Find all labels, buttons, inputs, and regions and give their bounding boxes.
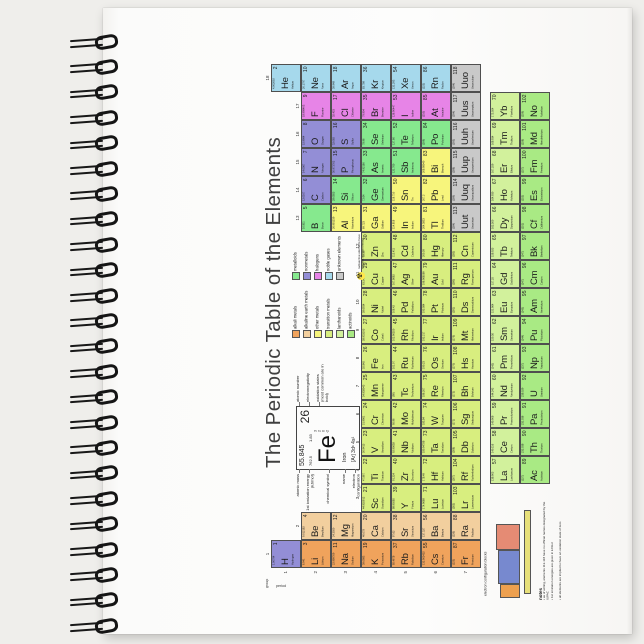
period-number-label: 4 — [373, 571, 378, 580]
element-cell-al: 1326.981539AlAluminium — [331, 204, 361, 232]
coil — [70, 212, 130, 232]
element-symbol: Ar — [340, 80, 351, 89]
note-item: • as of writing, elements 113-118 have n… — [543, 490, 551, 600]
element-symbol: N — [310, 166, 321, 173]
element-cell-cs: 55132.905452CsCaesium — [421, 540, 451, 568]
element-cell-sm: 62150.36SmSamarium — [490, 316, 520, 344]
element-symbol: Uus — [460, 101, 471, 117]
annotation-leader-line — [309, 469, 310, 473]
element-cell-fe: 2655.845FeIron — [361, 344, 391, 372]
coil-ring — [94, 58, 119, 76]
element-cell-hs: 108(270)HsHassium — [451, 344, 481, 372]
element-symbol: Uup — [460, 156, 471, 173]
coil — [70, 415, 130, 435]
element-symbol: Nb — [400, 441, 411, 453]
element-symbol: Uut — [460, 215, 471, 229]
coil-ring — [94, 185, 119, 203]
element-symbol: Cl — [340, 108, 351, 117]
element-symbol: Sb — [400, 162, 411, 173]
element-symbol: V — [370, 447, 381, 453]
atomic-mass: (294) — [453, 54, 459, 90]
coil-ring — [94, 236, 119, 254]
element-symbol: Db — [460, 441, 471, 453]
element-cell-tc: 43(98)TcTechnetium — [391, 372, 421, 400]
element-cell-mo: 4295.96MoMolybdenum — [391, 400, 421, 428]
element-cell-uuo: 118(294)UuoUnunoctium — [451, 64, 481, 92]
element-cell-kr: 3683.798KrKrypton — [361, 64, 391, 92]
coil — [70, 440, 130, 460]
coil-ring — [94, 566, 119, 584]
blocks-caption: electron configuration blocks — [484, 396, 492, 596]
element-cell-ac: 89(227)AcActinium — [520, 456, 550, 484]
element-cell-co: 2758.933195CoCobalt — [361, 316, 391, 344]
element-symbol: Rf — [460, 472, 471, 481]
coil-ring — [94, 617, 119, 635]
coil-ring — [94, 414, 119, 432]
element-name: Radon — [442, 41, 448, 89]
coil — [70, 34, 130, 54]
group-axis-word: group — [265, 579, 269, 588]
element-symbol: Ni — [370, 304, 381, 313]
element-cell-pa: 91231.036PaProtactinium — [520, 400, 550, 428]
element-cell-ag: 47107.8682AgSilver — [391, 260, 421, 288]
element-symbol: Sn — [400, 190, 411, 201]
element-cell-gd: 64157.25GdGadolinium — [490, 260, 520, 288]
element-cell-sb: 51121.760SbAntimony — [391, 148, 421, 176]
element-cell-mt: 109(276)MtMeitnerium — [451, 316, 481, 344]
element-symbol: Mt — [460, 331, 471, 341]
poster-title: The Periodic Table of the Elements — [262, 108, 286, 468]
annotation-leader-line — [345, 469, 346, 473]
coil-ring — [94, 287, 119, 305]
element-symbol: He — [280, 77, 291, 89]
element-cell-ho: 67164.930HoHolmium — [490, 176, 520, 204]
element-name: Ytterbium — [511, 69, 517, 117]
element-symbol: Th — [529, 442, 540, 453]
element-symbol: Bk — [529, 246, 540, 257]
feature-oxidation-states: 320-2 — [314, 410, 330, 430]
element-cell-pr: 59140.908PrPraseodymium — [490, 400, 520, 428]
element-symbol: Te — [400, 135, 411, 145]
element-cell-fr: 87(223)FrFrancium — [451, 540, 481, 568]
group-number-label: 2 — [295, 512, 300, 540]
element-cell-re: 75186.207ReRhenium — [421, 372, 451, 400]
element-symbol: Fe — [370, 358, 381, 369]
block-p-block — [496, 524, 520, 550]
element-symbol: Mg — [340, 524, 351, 537]
element-cell-no: 102(259)NoNobelium — [520, 92, 550, 120]
element-cell-br: 3579.904BrBromine — [361, 92, 391, 120]
element-symbol: Pd — [400, 302, 411, 313]
coil — [70, 339, 130, 359]
element-symbol: H — [280, 558, 291, 565]
legend-label: nonmetals — [304, 179, 313, 271]
element-cell-w: 74183.84WTungsten — [421, 400, 451, 428]
element-cell-si: 1428.0855SiSilicon — [331, 176, 361, 204]
element-symbol: Hf — [430, 472, 441, 481]
element-symbol: Cd — [400, 245, 411, 257]
legend-swatch — [303, 272, 311, 280]
element-cell-f: 918.998403FFluorine — [301, 92, 331, 120]
element-symbol: Uuh — [460, 128, 471, 145]
coil — [70, 85, 130, 105]
element-cell-hg: 80200.59HgMercury — [421, 232, 451, 260]
element-symbol: Se — [370, 134, 381, 145]
element-symbol: Br — [370, 108, 381, 117]
atomic-mass: (222) — [423, 54, 429, 90]
coil-ring — [94, 134, 119, 152]
annotation-leader-line — [299, 402, 300, 406]
element-symbol: Tb — [499, 246, 510, 257]
coil — [70, 390, 130, 410]
element-symbol: Lu — [430, 499, 441, 509]
element-symbol: Tc — [400, 388, 411, 397]
legend-swatch — [292, 272, 300, 280]
element-symbol: Rb — [400, 553, 411, 565]
coil-ring — [94, 439, 119, 457]
element-cell-ne: 1020.1797NeNeon — [301, 64, 331, 92]
coil-ring — [94, 337, 119, 355]
group-number-label: 18 — [265, 64, 270, 92]
element-symbol: Co — [370, 329, 381, 341]
legend-swatch — [347, 330, 355, 338]
element-cell-tl: 81204.3833TlThallium — [421, 204, 451, 232]
element-symbol: Ac — [529, 470, 540, 481]
element-symbol: Li — [310, 558, 321, 565]
element-cell-he: 24.002602HeHelium — [271, 64, 301, 92]
element-symbol: Nd — [499, 385, 510, 397]
element-symbol: Fm — [529, 160, 540, 173]
element-symbol: Cr — [370, 415, 381, 425]
element-symbol: Au — [430, 274, 441, 285]
element-symbol: La — [499, 471, 510, 481]
element-symbol: As — [370, 162, 381, 173]
element-cell-lr: 103(262)LrLawrencium — [451, 484, 481, 512]
element-symbol: Ti — [370, 474, 381, 481]
coil — [70, 517, 130, 537]
element-cell-n: 714.0067NNitrogen — [301, 148, 331, 176]
element-symbol: Pm — [499, 355, 510, 369]
element-cell-y: 3988.90585YYttrium — [391, 484, 421, 512]
coil — [70, 136, 130, 156]
element-cell-yb: 70173.054YbYtterbium — [490, 92, 520, 120]
element-symbol: Zr — [400, 472, 411, 481]
atomic-mass: 39.948 — [333, 54, 339, 90]
element-cell-rf: 104(267)RfRutherfordium — [451, 456, 481, 484]
element-cell-se: 3478.96SeSelenium — [361, 120, 391, 148]
feature-annotation-label: 1st ionization energy (kJ/mol) — [306, 436, 324, 512]
element-symbol: Y — [400, 503, 411, 509]
element-symbol: Fr — [460, 556, 471, 565]
atomic-mass: 4.002602 — [273, 54, 279, 90]
legend-swatch — [336, 272, 344, 280]
feature-annotation-label: name — [342, 436, 351, 512]
element-cell-er: 68167.259ErErbium — [490, 148, 520, 176]
coil-ring — [94, 83, 119, 101]
note-item: • all elements are implied to have an ox… — [559, 490, 567, 600]
legend-label: metalloids — [293, 179, 302, 271]
element-symbol: Re — [430, 385, 441, 397]
element-symbol: Sg — [460, 414, 471, 425]
annotation-leader-line — [309, 402, 310, 406]
element-name: Ununoctium — [472, 41, 478, 89]
element-symbol: Eu — [499, 302, 510, 313]
element-symbol: Uuq — [460, 184, 471, 201]
element-cell-mg: 1224.3050MgMagnesium — [331, 512, 361, 540]
period-number-label: 1 — [283, 571, 288, 580]
coil-ring — [94, 591, 119, 609]
element-symbol: Mo — [400, 412, 411, 425]
element-cell-la: 57138.905LaLanthanum — [490, 456, 520, 484]
element-symbol: Ag — [400, 274, 411, 285]
element-symbol: Hg — [430, 245, 441, 257]
group-number-label: 17 — [295, 92, 300, 120]
group-number-label: 15 — [295, 148, 300, 176]
element-cell-ce: 58140.116CeCerium — [490, 428, 520, 456]
coil — [70, 364, 130, 384]
feature-annotation-label: chemical symbol — [326, 436, 335, 512]
block-d-block — [498, 550, 520, 584]
element-cell-rg: 111(280)RgRoentgenium — [451, 260, 481, 288]
element-symbol: Ba — [430, 526, 441, 537]
element-name: Xenon — [412, 41, 418, 89]
element-cell-nd: 60144.242NdNeodymium — [490, 372, 520, 400]
element-symbol: Ho — [499, 189, 510, 201]
element-symbol: Ir — [430, 336, 441, 341]
element-symbol: At — [430, 108, 441, 117]
element-cell-sr: 3887.62SrStrontium — [391, 512, 421, 540]
legend-label: actinoids — [348, 237, 357, 329]
element-cell-rb: 3785.4678RbRubidium — [391, 540, 421, 568]
element-cell-ra: 88(226)RaRadium — [451, 512, 481, 540]
legend-swatch — [325, 330, 333, 338]
atomic-mass: 131.293 — [393, 54, 399, 90]
element-symbol: Am — [529, 299, 540, 313]
element-cell-te: 52127.60TeTellurium — [391, 120, 421, 148]
element-cell-cr: 2451.9961CrChromium — [361, 400, 391, 428]
element-cell-be: 49.012182BeBeryllium — [301, 512, 331, 540]
coil — [70, 263, 130, 283]
element-cell-s: 1632.065SSulfur — [331, 120, 361, 148]
element-cell-db: 105(268)DbDubnium — [451, 428, 481, 456]
element-cell-uup: 115(288)UupUnunpentium — [451, 148, 481, 176]
element-cell-hf: 72178.49HfHafnium — [421, 456, 451, 484]
element-symbol: Md — [529, 132, 540, 145]
element-symbol: Po — [430, 134, 441, 145]
element-symbol: Cn — [460, 245, 471, 257]
element-symbol: In — [400, 221, 411, 229]
element-symbol: Dy — [499, 218, 510, 229]
element-name: Neon — [322, 41, 328, 89]
element-cell-cf: 98(251)CfCalifornium — [520, 204, 550, 232]
element-cell-u: 92238.029UUranium — [520, 372, 550, 400]
atomic-mass: 20.1797 — [303, 54, 309, 90]
atomic-mass: (259) — [522, 82, 528, 118]
element-symbol: Sm — [499, 327, 510, 341]
element-cell-uus: 117(294)UusUnunseptium — [451, 92, 481, 120]
element-cell-md: 101(258)MdMendelevium — [520, 120, 550, 148]
element-symbol: Ra — [460, 525, 471, 537]
element-cell-pd: 46106.42PdPalladium — [391, 288, 421, 316]
element-cell-tm: 69168.934TmThulium — [490, 120, 520, 148]
element-symbol: O — [310, 138, 321, 145]
element-cell-sg: 106(271)SgSeaborgium — [451, 400, 481, 428]
coil — [70, 237, 130, 257]
coil — [70, 491, 130, 511]
legend-swatch — [314, 272, 322, 280]
element-name: Helium — [292, 41, 298, 89]
period-number-label: 5 — [403, 571, 408, 580]
element-cell-fm: 100(257)FmFermium — [520, 148, 550, 176]
block-f-block — [524, 510, 531, 594]
element-cell-th: 90232.038ThThorium — [520, 428, 550, 456]
element-cell-at: 85(210)AtAstatine — [421, 92, 451, 120]
element-cell-as: 3374.92160AsArsenic — [361, 148, 391, 176]
element-cell-na: 1122.989769NaSodium — [331, 540, 361, 568]
coil-ring — [94, 388, 119, 406]
element-cell-li: 36.941LiLithium — [301, 540, 331, 568]
element-symbol: F — [310, 111, 321, 117]
periodic-table-poster: The Periodic Table of the Elements 11.00… — [216, 38, 644, 608]
element-cell-i: 53126.90447IIodine — [391, 92, 421, 120]
element-symbol: K — [370, 559, 381, 565]
element-cell-cn: 112(285)CnCopernicium — [451, 232, 481, 260]
coil — [70, 542, 130, 562]
annotation-leader-line — [329, 469, 330, 473]
element-symbol: Np — [529, 357, 540, 369]
element-cell-bi: 83208.98040BiBismuth — [421, 148, 451, 176]
element-cell-h: 11.00794HHydrogen — [271, 540, 301, 568]
element-cell-nb: 4192.90638NbNiobium — [391, 428, 421, 456]
element-cell-po: 84(209)PoPolonium — [421, 120, 451, 148]
coil-ring — [94, 464, 119, 482]
coil-ring — [94, 210, 119, 228]
element-symbol: Uuo — [460, 72, 471, 89]
coil-ring — [94, 261, 119, 279]
element-cell-uuh: 116(293)UuhUnunhexium — [451, 120, 481, 148]
element-symbol: Bh — [460, 386, 471, 397]
element-cell-cm: 96(247)CmCurium — [520, 260, 550, 288]
legend-swatch — [303, 330, 311, 338]
coil-ring — [94, 312, 119, 330]
element-cell-tb: 65158.925TbTerbium — [490, 232, 520, 260]
coil-ring — [94, 33, 119, 51]
element-symbol: Be — [310, 526, 321, 537]
element-cell-rn: 86(222)RnRadon — [421, 64, 451, 92]
element-cell-es: 99(252)EsEinsteinium — [520, 176, 550, 204]
element-symbol: Rh — [400, 329, 411, 341]
element-cell-ru: 44101.07RuRuthenium — [391, 344, 421, 372]
element-cell-uut: 113(284)UutUnuntrium — [451, 204, 481, 232]
element-cell-mn: 2554.938045MnManganese — [361, 372, 391, 400]
element-cell-ni: 2858.6934NiNickel — [361, 288, 391, 316]
element-symbol: U — [529, 390, 540, 397]
period-number-label: 6 — [433, 571, 438, 580]
element-symbol: Pa — [529, 414, 540, 425]
group-number-label: 7 — [355, 372, 360, 400]
element-symbol: Na — [340, 553, 351, 565]
period-number-label: 7 — [463, 571, 468, 580]
element-cell-cd: 48112.411CdCadmium — [391, 232, 421, 260]
period-axis-word: period — [276, 584, 286, 588]
element-symbol: S — [340, 139, 351, 145]
element-cell-dy: 66162.500DyDysprosium — [490, 204, 520, 232]
element-cell-pt: 78195.084PtPlatinum — [421, 288, 451, 316]
element-symbol: No — [529, 105, 540, 117]
coil — [70, 161, 130, 181]
element-name: Krypton — [382, 41, 388, 89]
period-number-label: 3 — [343, 571, 348, 580]
element-symbol: Es — [529, 190, 540, 201]
element-symbol: Ce — [499, 441, 510, 453]
element-symbol: Cs — [430, 554, 441, 565]
group-number-label: 8 — [355, 344, 360, 372]
radioactive-note: radioactive elements have masses in pare… — [358, 181, 371, 269]
element-symbol: P — [340, 167, 351, 173]
element-cell-pb: 82207.2PbLead — [421, 176, 451, 204]
coil-ring — [94, 541, 119, 559]
element-cell-o: 815.9994OOxygen — [301, 120, 331, 148]
element-symbol: Ru — [400, 357, 411, 369]
element-cell-cl: 1735.453ClChlorine — [331, 92, 361, 120]
coil — [70, 59, 130, 79]
legend-label: halogens — [315, 179, 324, 271]
element-cell-ba: 56137.327BaBarium — [421, 512, 451, 540]
element-symbol: Rg — [460, 273, 471, 285]
element-symbol: Cm — [529, 271, 540, 285]
group-number-label: 16 — [295, 120, 300, 148]
electron-configuration-blocks-diagram: electron configuration blocks — [484, 490, 534, 600]
coil — [70, 288, 130, 308]
element-symbol: Er — [499, 164, 510, 173]
coil — [70, 567, 130, 587]
element-cell-np: 93(237)NpNeptunium — [520, 344, 550, 372]
element-symbol: Os — [430, 357, 441, 369]
coil — [70, 593, 130, 613]
period-number-label: 2 — [313, 571, 318, 580]
legend-swatch — [292, 330, 300, 338]
coil — [70, 466, 130, 486]
element-cell-bk: 97(247)BkBerkelium — [520, 232, 550, 260]
element-cell-xe: 54131.293XeXenon — [391, 64, 421, 92]
element-symbol: Bi — [430, 165, 441, 173]
element-cell-ca: 2040.078CaCalcium — [361, 512, 391, 540]
group-number-label: 1 — [265, 540, 270, 568]
element-symbol: Cu — [370, 273, 381, 285]
element-symbol: W — [430, 416, 441, 425]
element-symbol: Sc — [370, 498, 381, 509]
element-symbol: Yb — [499, 106, 510, 117]
element-symbol: Pu — [529, 330, 540, 341]
legend-label: noble gases — [326, 179, 335, 271]
element-symbol: Ds — [460, 302, 471, 313]
element-symbol: Lr — [460, 501, 471, 509]
coil — [70, 313, 130, 333]
element-symbol: Cf — [529, 220, 540, 229]
element-symbol: Pb — [430, 190, 441, 201]
element-symbol: Pr — [499, 416, 510, 425]
legend-swatch — [314, 330, 322, 338]
coil-ring — [94, 515, 119, 533]
element-cell-in: 49114.818InIndium — [391, 204, 421, 232]
element-cell-lu: 71174.9668LuLutetium — [421, 484, 451, 512]
element-cell-k: 1939.0983KPotassium — [361, 540, 391, 568]
element-symbol: Mn — [370, 384, 381, 397]
element-cell-bh: 107(272)BhBohrium — [451, 372, 481, 400]
element-cell-sn: 50118.710SnTin — [391, 176, 421, 204]
legend-label: unknown elements — [337, 179, 346, 271]
coil — [70, 110, 130, 130]
